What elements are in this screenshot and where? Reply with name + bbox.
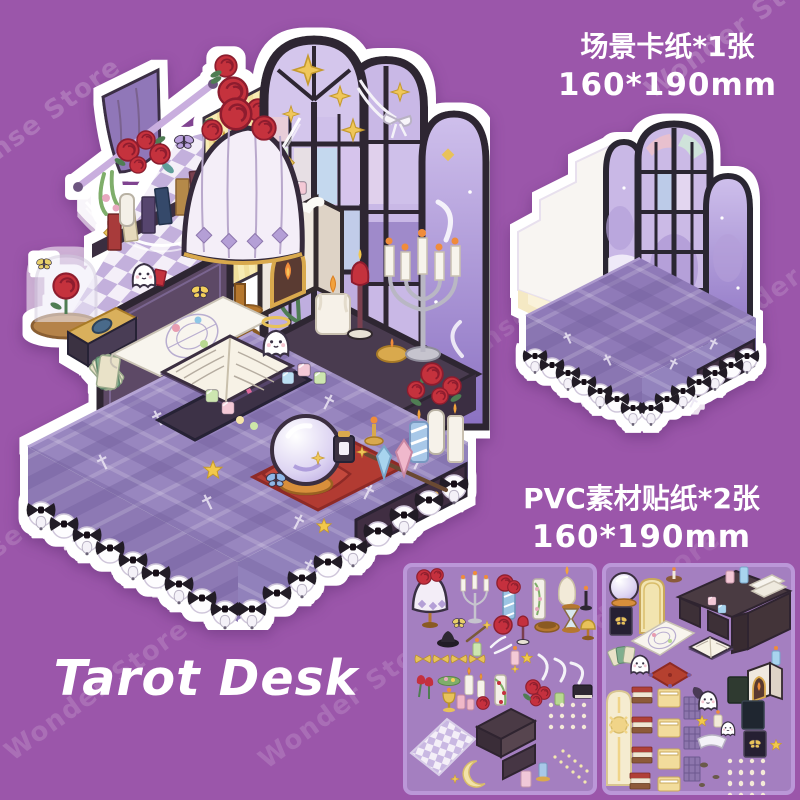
scene-card-sticker [488, 108, 798, 453]
sticker-frame-green [728, 677, 748, 703]
sticker-ghost-sm [721, 722, 735, 736]
sticker-frame-navy [742, 701, 764, 729]
sticker-black-book [573, 685, 592, 698]
sticker-leaf-plate [438, 677, 460, 686]
sticker-pink-pillar [521, 771, 531, 787]
scene-card-callout-line2: 160*190mm [535, 65, 800, 105]
scene-card-callout-line1: 场景卡纸*1张 [535, 28, 800, 65]
pvc-sticker-callout: PVC素材贴纸*2张 160*190mm [483, 480, 800, 557]
pvc-sticker-callout-line1: PVC素材贴纸*2张 [483, 480, 800, 517]
sticker-fireplace [748, 663, 782, 703]
tarot-desk-scene-sticker [8, 22, 490, 630]
sticker-frame-butterfly2 [744, 731, 766, 757]
sticker-rose [494, 616, 512, 634]
sticker-ghost [631, 655, 649, 673]
pvc-sticker-callout-line2: 160*190mm [483, 517, 800, 557]
scene-card-callout: 场景卡纸*1张 160*190mm [535, 28, 800, 105]
sticker-garland-column [495, 675, 506, 705]
sticker-wooden-dish [535, 622, 559, 632]
sticker-red-flower [477, 697, 490, 710]
lantern [334, 431, 354, 462]
sticker-sheet-2 [602, 563, 795, 795]
sticker-sun-window [607, 691, 631, 785]
sticker-floral-column [533, 579, 545, 619]
product-title: Tarot Desk [38, 650, 374, 707]
sticker-crystal-ball [610, 573, 638, 607]
sticker-frame-butterfly [610, 607, 632, 635]
sticker-sheet-1 [403, 563, 597, 795]
